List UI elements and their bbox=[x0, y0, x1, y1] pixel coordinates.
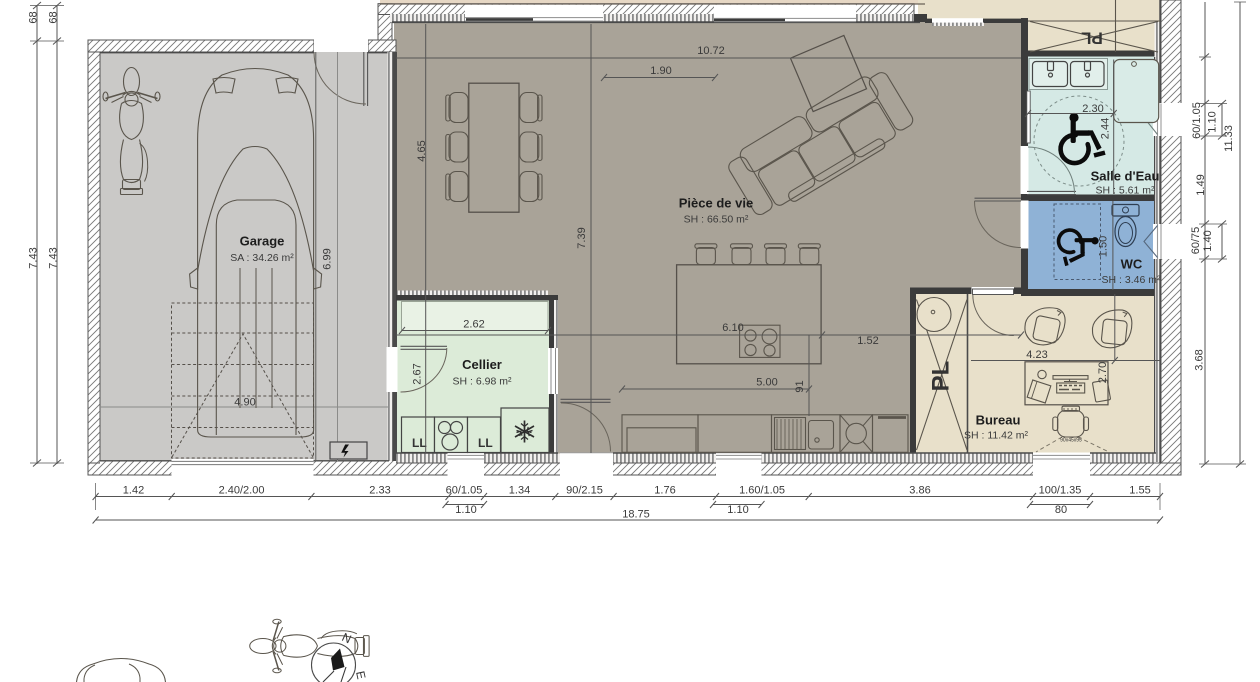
svg-text:SH : 5.61 m²: SH : 5.61 m² bbox=[1096, 185, 1155, 197]
svg-text:LL: LL bbox=[412, 436, 427, 450]
svg-text:7.39: 7.39 bbox=[576, 227, 588, 248]
svg-text:3.68: 3.68 bbox=[1194, 349, 1206, 370]
svg-text:1.10: 1.10 bbox=[1207, 111, 1219, 132]
svg-text:SH : 3.46 m²: SH : 3.46 m² bbox=[1102, 274, 1161, 286]
svg-text:90x45x95: 90x45x95 bbox=[1060, 438, 1082, 444]
svg-text:60/75: 60/75 bbox=[1190, 227, 1202, 255]
svg-text:2.67: 2.67 bbox=[412, 363, 424, 384]
svg-text:Garage: Garage bbox=[240, 234, 285, 249]
svg-text:11.33: 11.33 bbox=[1223, 125, 1235, 152]
svg-text:68: 68 bbox=[28, 11, 40, 23]
svg-text:60/1.05: 60/1.05 bbox=[1191, 102, 1203, 139]
svg-text:1.60/1.05: 1.60/1.05 bbox=[739, 485, 785, 497]
svg-text:4.90: 4.90 bbox=[234, 397, 255, 409]
svg-text:1.90: 1.90 bbox=[650, 65, 671, 77]
svg-text:1.50: 1.50 bbox=[1098, 236, 1110, 257]
svg-text:6.10: 6.10 bbox=[722, 322, 743, 334]
svg-text:18.75: 18.75 bbox=[622, 509, 650, 521]
svg-text:Salle d'Eau: Salle d'Eau bbox=[1091, 169, 1160, 184]
svg-text:SH : 11.42 m²: SH : 11.42 m² bbox=[964, 430, 1028, 442]
svg-text:5.00: 5.00 bbox=[756, 377, 777, 389]
svg-text:2.33: 2.33 bbox=[369, 485, 390, 497]
svg-text:1.76: 1.76 bbox=[654, 485, 675, 497]
svg-text:SH : 66.50 m²: SH : 66.50 m² bbox=[684, 214, 749, 226]
svg-text:1.10: 1.10 bbox=[727, 504, 748, 516]
svg-text:68: 68 bbox=[48, 11, 60, 23]
svg-text:Cellier: Cellier bbox=[462, 357, 502, 372]
svg-text:10.72: 10.72 bbox=[697, 45, 725, 57]
svg-text:2.70: 2.70 bbox=[1097, 362, 1109, 383]
svg-text:1.10: 1.10 bbox=[455, 504, 476, 516]
svg-text:1.55: 1.55 bbox=[1129, 485, 1150, 497]
svg-text:80: 80 bbox=[1055, 504, 1067, 516]
svg-text:4.65: 4.65 bbox=[416, 140, 428, 161]
svg-text:LL: LL bbox=[478, 436, 493, 450]
svg-text:PL: PL bbox=[927, 361, 954, 392]
svg-text:SA : 34.26 m²: SA : 34.26 m² bbox=[230, 252, 294, 264]
svg-text:6.99: 6.99 bbox=[322, 248, 334, 269]
svg-text:SH : 6.98 m²: SH : 6.98 m² bbox=[453, 376, 512, 388]
svg-text:7.43: 7.43 bbox=[48, 247, 60, 268]
svg-text:3.86: 3.86 bbox=[909, 485, 930, 497]
svg-text:60/1.05: 60/1.05 bbox=[446, 485, 483, 497]
svg-text:2.44: 2.44 bbox=[1100, 118, 1112, 139]
svg-text:WC: WC bbox=[1121, 257, 1143, 272]
svg-text:100/1.35: 100/1.35 bbox=[1039, 485, 1082, 497]
svg-text:91: 91 bbox=[794, 380, 806, 392]
svg-text:1.42: 1.42 bbox=[123, 485, 144, 497]
svg-text:2.62: 2.62 bbox=[463, 319, 484, 331]
svg-text:2.40/2.00: 2.40/2.00 bbox=[219, 485, 265, 497]
svg-text:PL: PL bbox=[1081, 29, 1103, 48]
svg-text:2.30: 2.30 bbox=[1082, 103, 1103, 115]
svg-text:1.34: 1.34 bbox=[509, 485, 530, 497]
svg-text:Bureau: Bureau bbox=[976, 413, 1021, 428]
svg-text:Pièce de vie: Pièce de vie bbox=[679, 196, 753, 211]
svg-text:4.23: 4.23 bbox=[1026, 349, 1047, 361]
svg-text:1.40: 1.40 bbox=[1202, 230, 1214, 251]
svg-text:90/2.15: 90/2.15 bbox=[566, 485, 603, 497]
svg-text:7.43: 7.43 bbox=[28, 247, 40, 268]
svg-text:1.52: 1.52 bbox=[857, 335, 878, 347]
svg-text:1.49: 1.49 bbox=[1195, 174, 1207, 195]
